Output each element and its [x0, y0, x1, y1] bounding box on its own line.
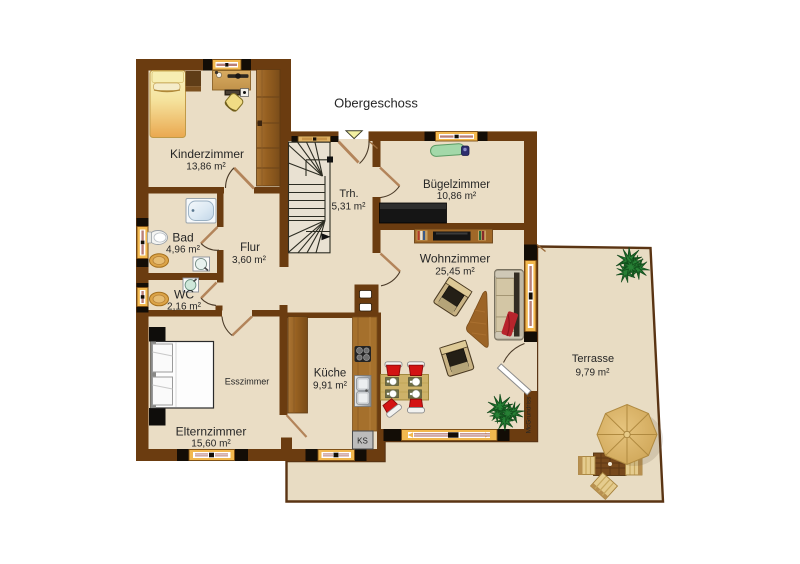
- svg-text:McGrundriss: McGrundriss: [526, 396, 533, 434]
- svg-text:4,96 m²: 4,96 m²: [166, 245, 201, 256]
- svg-text:3,60 m²: 3,60 m²: [232, 255, 267, 266]
- svg-text:Terrasse: Terrasse: [572, 353, 614, 365]
- svg-text:5,31 m²: 5,31 m²: [332, 202, 367, 213]
- svg-text:25,45 m²: 25,45 m²: [435, 267, 475, 278]
- svg-text:2,16 m²: 2,16 m²: [167, 302, 202, 313]
- svg-text:KS: KS: [357, 437, 368, 446]
- svg-text:9,79 m²: 9,79 m²: [576, 368, 611, 379]
- svg-text:Obergeschoss: Obergeschoss: [334, 96, 418, 111]
- svg-text:Kinderzimmer: Kinderzimmer: [170, 147, 244, 161]
- svg-text:Bad: Bad: [172, 231, 193, 245]
- svg-text:9,91 m²: 9,91 m²: [313, 381, 348, 392]
- svg-text:Bügelzimmer: Bügelzimmer: [423, 179, 490, 191]
- svg-text:15,60 m²: 15,60 m²: [191, 439, 231, 450]
- svg-text:WC: WC: [174, 288, 194, 302]
- svg-text:Flur: Flur: [240, 242, 260, 254]
- svg-text:10,86 m²: 10,86 m²: [437, 191, 477, 202]
- svg-text:Elternzimmer: Elternzimmer: [176, 425, 247, 439]
- svg-text:Trh.: Trh.: [339, 188, 358, 200]
- svg-text:Küche: Küche: [314, 368, 347, 380]
- svg-text:Esszimmer: Esszimmer: [225, 377, 270, 387]
- svg-text:13,86 m²: 13,86 m²: [186, 162, 226, 173]
- svg-text:Wohnzimmer: Wohnzimmer: [420, 252, 490, 266]
